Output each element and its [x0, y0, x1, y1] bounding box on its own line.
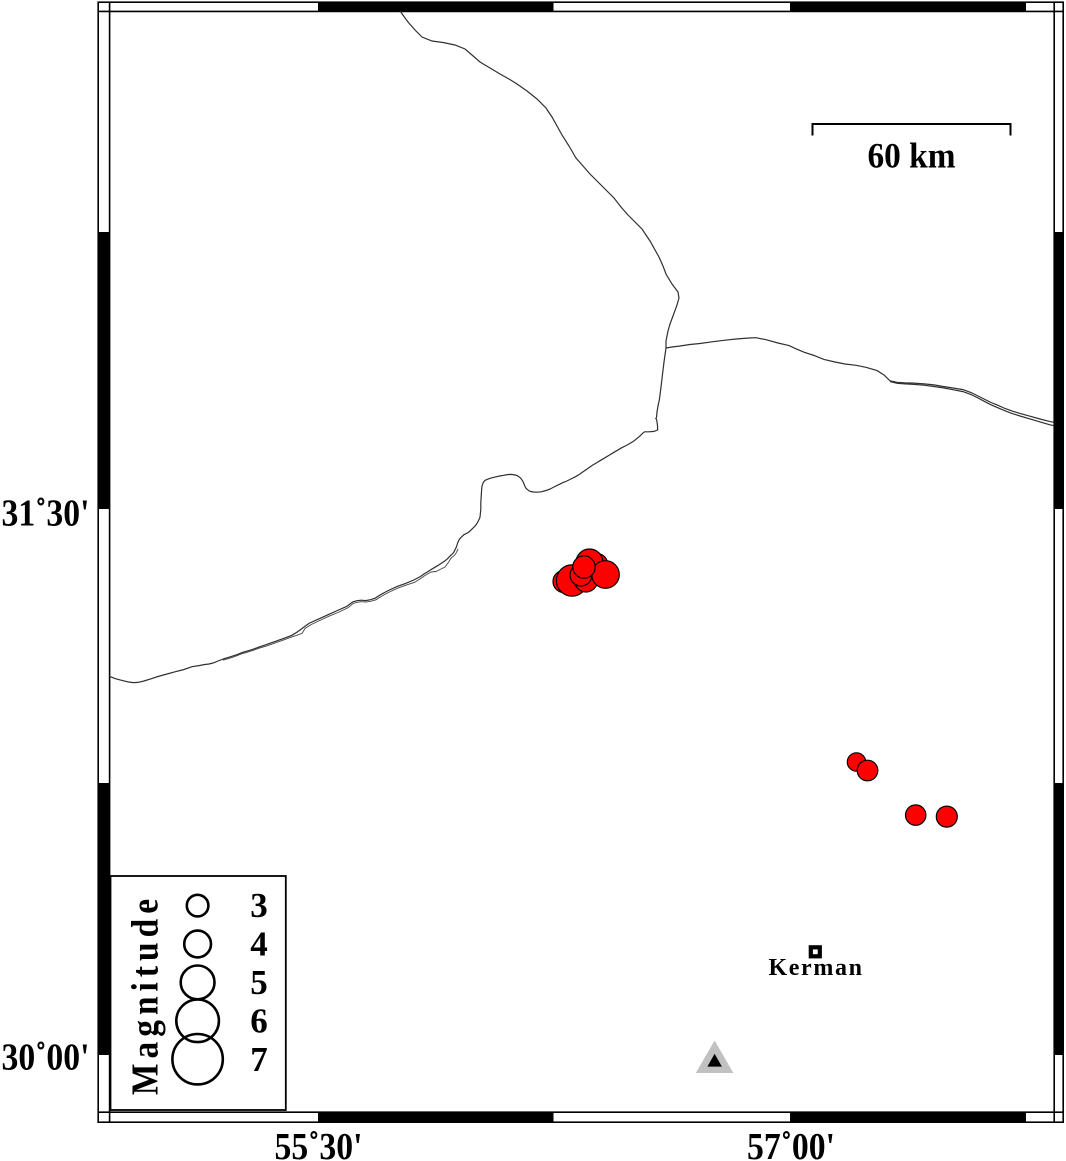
svg-text:60 km: 60 km — [868, 136, 956, 176]
svg-text:5: 5 — [250, 963, 268, 1002]
svg-text:6: 6 — [250, 1001, 268, 1040]
svg-text:30˚00': 30˚00' — [2, 1037, 90, 1079]
svg-text:4: 4 — [250, 925, 268, 964]
svg-text:7: 7 — [250, 1040, 268, 1079]
svg-text:3: 3 — [250, 886, 268, 925]
svg-text:57˚00': 57˚00' — [747, 1126, 835, 1161]
svg-text:55˚30': 55˚30' — [275, 1126, 363, 1161]
svg-text:31˚30': 31˚30' — [2, 493, 90, 535]
svg-text:Kerman: Kerman — [768, 955, 862, 981]
svg-text:Magnitude: Magnitude — [124, 894, 166, 1095]
